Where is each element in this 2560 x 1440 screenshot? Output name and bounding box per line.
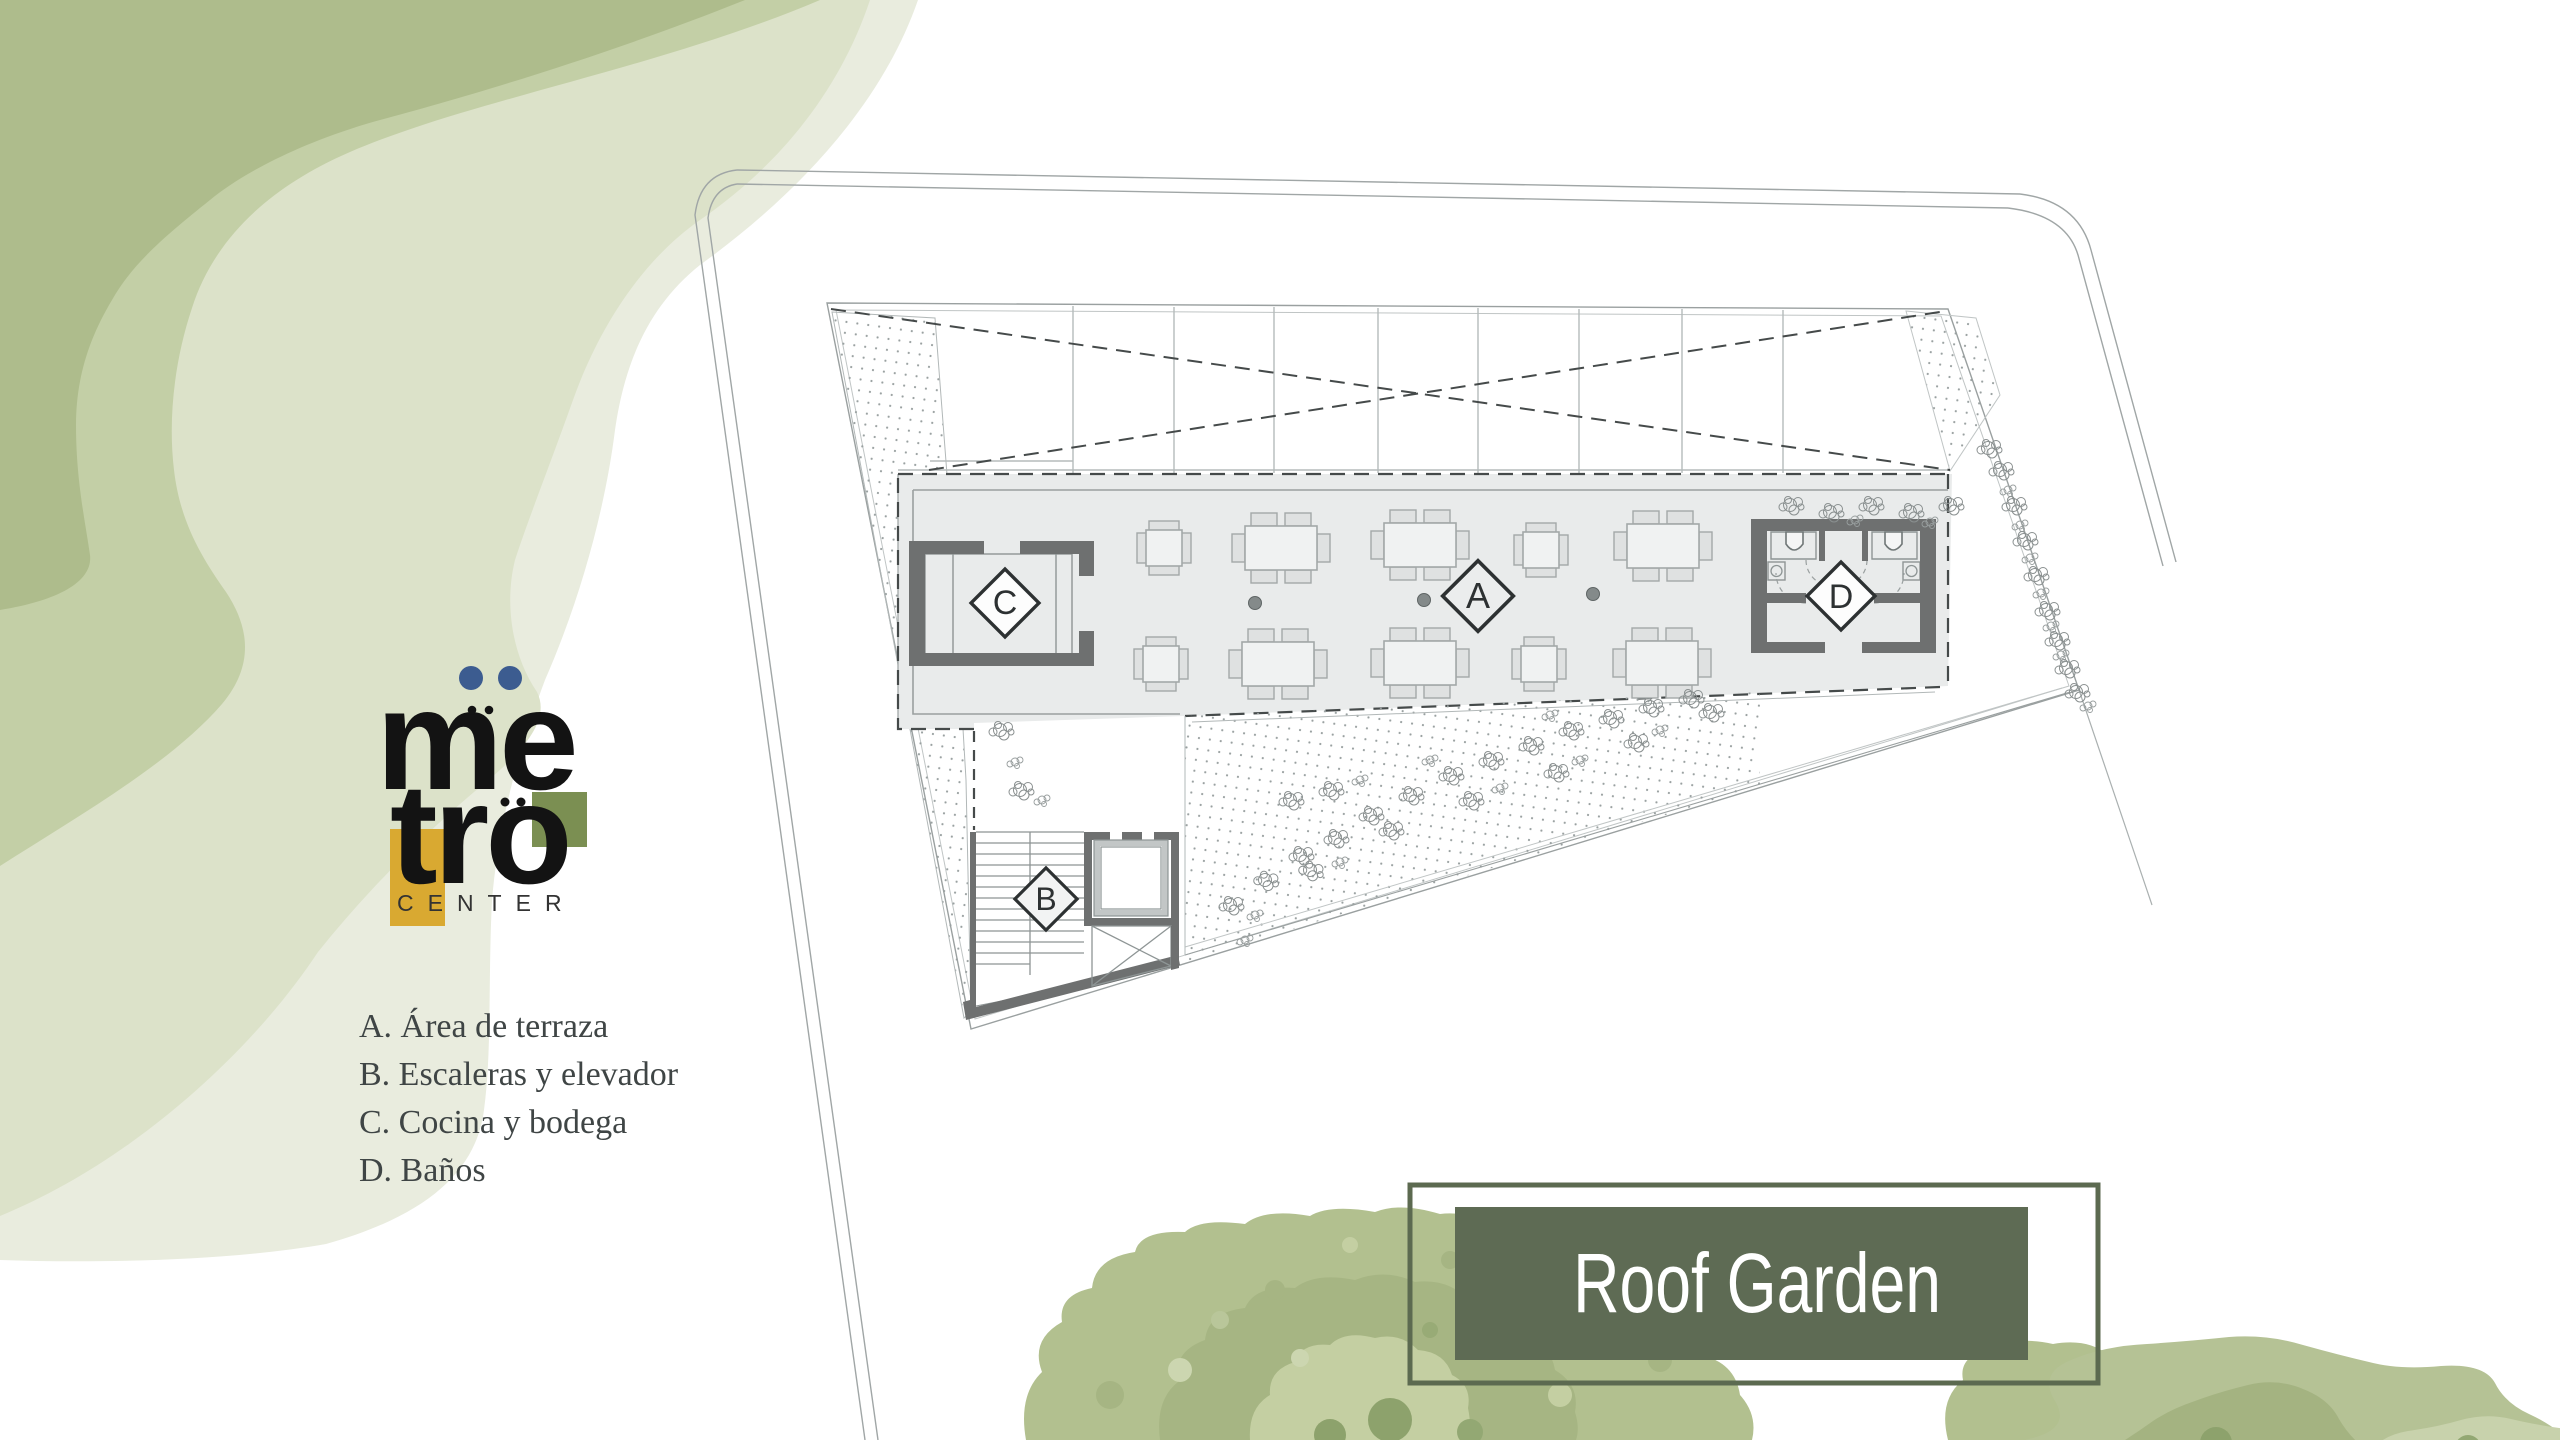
svg-text:D: D [1829, 578, 1854, 616]
svg-text:C. Cocina y bodega: C. Cocina y bodega [359, 1104, 627, 1141]
svg-text:B. Escaleras y elevador: B. Escaleras y elevador [359, 1056, 679, 1093]
svg-text:CENTER: CENTER [397, 890, 576, 916]
svg-text:D. Baños: D. Baños [359, 1152, 486, 1189]
svg-text:A: A [1466, 575, 1490, 616]
svg-text:Roof Garden: Roof Garden [1573, 1236, 1941, 1330]
svg-text:B: B [1035, 881, 1056, 917]
svg-text:C: C [993, 584, 1018, 622]
svg-text:A. Área de terraza: A. Área de terraza [359, 1008, 608, 1045]
